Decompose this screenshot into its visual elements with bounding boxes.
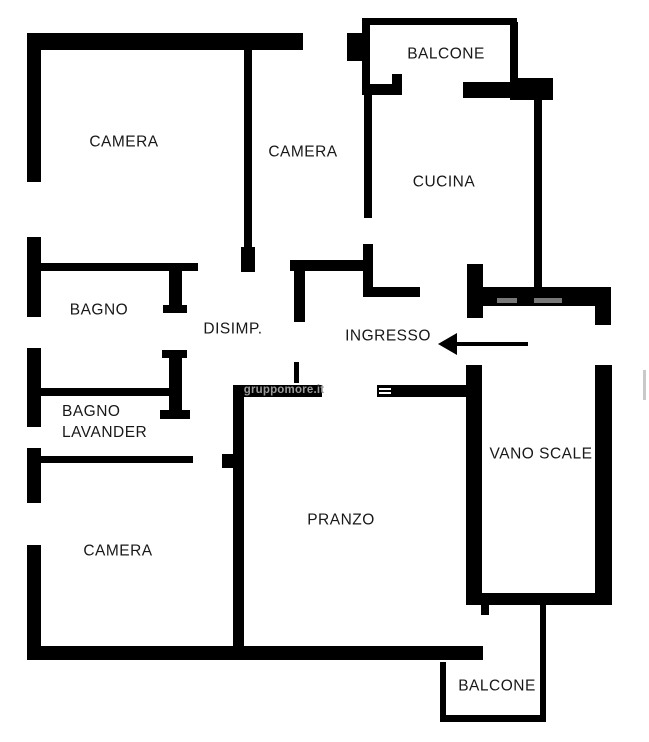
room-label-balcone-s: BALCONE bbox=[458, 676, 536, 697]
wall-segment bbox=[379, 392, 391, 394]
wall-segment bbox=[643, 370, 646, 400]
wall-segment bbox=[27, 448, 41, 503]
arrow-shaft bbox=[453, 342, 528, 346]
wall-segment bbox=[440, 715, 546, 722]
wall-segment bbox=[534, 95, 542, 292]
wall-segment bbox=[347, 33, 364, 61]
wall-segment bbox=[595, 365, 612, 603]
room-label-pranzo: PRANZO bbox=[307, 510, 375, 531]
wall-segment bbox=[27, 646, 483, 660]
wall-segment bbox=[595, 287, 611, 325]
wall-segment bbox=[540, 605, 546, 722]
wall-segment bbox=[27, 237, 41, 317]
wall-segment bbox=[163, 305, 187, 313]
wall-segment bbox=[27, 348, 41, 427]
room-label-ingresso: INGRESSO bbox=[345, 326, 431, 347]
room-label-camera-sw: CAMERA bbox=[83, 541, 152, 562]
floor-plan: gruppomore.it CAMERACAMERABALCONECUCINAB… bbox=[0, 0, 649, 742]
wall-segment bbox=[41, 456, 193, 463]
wall-segment bbox=[377, 385, 466, 397]
arrow-head-icon bbox=[438, 333, 457, 355]
wall-segment bbox=[510, 78, 553, 100]
wall-segment bbox=[379, 388, 391, 390]
wall-segment bbox=[160, 410, 190, 419]
room-label-bagno: BAGNO bbox=[70, 300, 128, 321]
wall-segment bbox=[241, 247, 255, 272]
wall-segment bbox=[41, 388, 173, 396]
wall-segment bbox=[373, 287, 420, 297]
wall-segment bbox=[364, 93, 372, 218]
wall-segment bbox=[463, 82, 511, 98]
room-label-cucina: CUCINA bbox=[413, 172, 475, 193]
wall-segment bbox=[27, 33, 41, 182]
room-label-disimp: DISIMP. bbox=[203, 319, 262, 340]
wall-segment bbox=[294, 269, 305, 322]
wall-segment bbox=[392, 74, 402, 95]
room-label-bagno-lavanderia: BAGNOLAVANDER bbox=[62, 401, 147, 443]
wall-segment bbox=[497, 298, 517, 303]
wall-segment bbox=[466, 365, 482, 603]
wall-segment bbox=[294, 362, 299, 383]
wall-segment bbox=[362, 18, 517, 25]
wall-segment bbox=[27, 545, 41, 657]
wall-segment bbox=[467, 264, 483, 318]
wall-segment bbox=[244, 50, 252, 272]
room-label-vano-scale: VANO SCALE bbox=[490, 444, 593, 465]
room-label-camera-n: CAMERA bbox=[268, 142, 337, 163]
wall-segment bbox=[481, 603, 489, 615]
wall-segment bbox=[169, 350, 182, 418]
wall-segment bbox=[510, 22, 518, 84]
wall-segment bbox=[27, 33, 303, 50]
wall-segment bbox=[233, 385, 244, 650]
wall-segment bbox=[162, 350, 187, 358]
room-label-camera-nw: CAMERA bbox=[89, 132, 158, 153]
wall-segment bbox=[440, 662, 446, 719]
watermark: gruppomore.it bbox=[244, 384, 325, 396]
room-label-balcone-n: BALCONE bbox=[407, 44, 485, 65]
wall-segment bbox=[534, 298, 562, 303]
